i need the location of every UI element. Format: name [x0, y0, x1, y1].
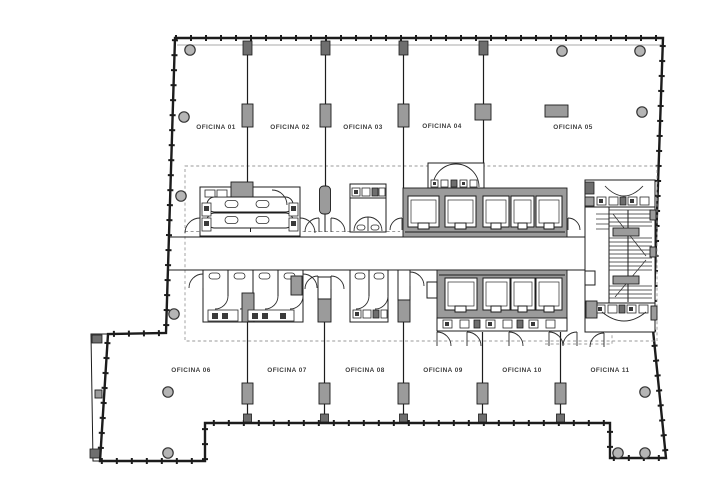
wall-column [479, 414, 487, 422]
free-column [545, 105, 568, 117]
column-circle [637, 107, 647, 117]
column-circle [640, 448, 650, 458]
elevator-car [445, 278, 562, 312]
restroom-upper-left [185, 182, 315, 236]
wall-column [243, 41, 252, 55]
office-10-label: OFICINA 10 [502, 367, 541, 374]
office-03-label: OFICINA 03 [343, 124, 382, 131]
floor-plan-drawing: OFICINA 01 OFICINA 02 OFICINA 03 OFICINA… [0, 0, 720, 498]
office-06-label: OFICINA 06 [171, 367, 210, 374]
wall-column [479, 41, 488, 55]
column-circle [613, 448, 623, 458]
column-circle [163, 448, 173, 458]
restroom-lower-left [189, 270, 317, 322]
column-circle [557, 46, 567, 56]
restroom-lower-mid [350, 270, 388, 322]
column-circle [635, 46, 645, 56]
office-04-label: OFICINA 04 [422, 123, 461, 130]
office-05-label: OFICINA 05 [553, 124, 592, 131]
office-02-label: OFICINA 02 [270, 124, 309, 131]
wall-column [399, 41, 408, 55]
column-circle [163, 387, 173, 397]
column-circle [176, 191, 186, 201]
office-09-label: OFICINA 09 [423, 367, 462, 374]
office-01-label: OFICINA 01 [196, 124, 235, 131]
wall-column [244, 414, 252, 422]
column-circle [640, 387, 650, 397]
column-circle [179, 112, 189, 122]
floor-plan-canvas: OFICINA 01 OFICINA 02 OFICINA 03 OFICINA… [0, 0, 720, 498]
restroom-upper-mid [350, 184, 386, 232]
partition-column [320, 104, 331, 127]
wall-column [321, 41, 330, 55]
partition-column [319, 383, 330, 404]
partition-column [242, 383, 253, 404]
office-07-label: OFICINA 07 [267, 367, 306, 374]
elevator-bank-upper [403, 188, 567, 237]
wall-column [400, 414, 408, 422]
wall-column [557, 414, 565, 422]
column-circle [185, 45, 195, 55]
partition-column [398, 383, 409, 404]
partition-column [477, 383, 488, 404]
partition-column [398, 104, 409, 127]
office-11-label: OFICINA 11 [590, 367, 629, 374]
stair-core [585, 180, 657, 347]
partition-column [242, 104, 253, 127]
exterior-walls [90, 38, 666, 461]
elevator-vestibule [428, 163, 484, 188]
partition-column [475, 104, 491, 120]
wall-column [321, 414, 329, 422]
office-08-label: OFICINA 08 [345, 367, 384, 374]
elevator-car [408, 196, 562, 229]
stair-landing [613, 228, 639, 236]
column-circle [169, 309, 179, 319]
stair-landing [613, 276, 639, 284]
partition-column [555, 383, 566, 404]
